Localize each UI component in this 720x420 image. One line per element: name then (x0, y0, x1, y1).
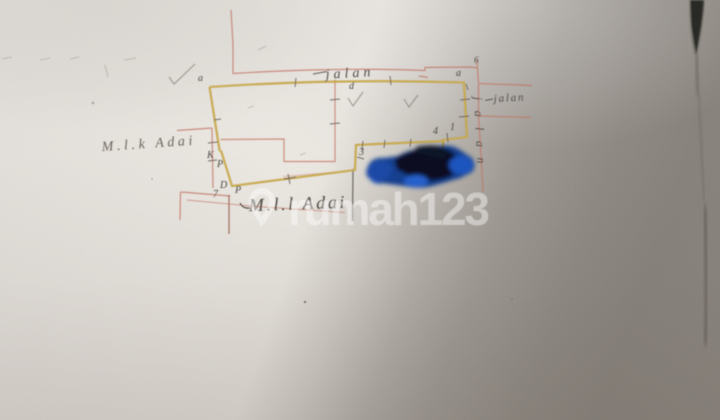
svg-text:D: D (219, 180, 228, 191)
svg-text:P: P (216, 159, 223, 170)
svg-text:rumah123: rumah123 (288, 183, 488, 235)
svg-text:a: a (198, 73, 203, 84)
svg-text:K: K (206, 150, 215, 161)
svg-text:a: a (456, 68, 461, 79)
svg-text:3: 3 (358, 147, 364, 158)
svg-text:jalan: jalan (491, 91, 525, 105)
svg-text:4: 4 (433, 126, 438, 137)
svg-text:6: 6 (474, 55, 479, 65)
svg-text:1: 1 (450, 122, 455, 133)
svg-text:P: P (234, 185, 241, 196)
